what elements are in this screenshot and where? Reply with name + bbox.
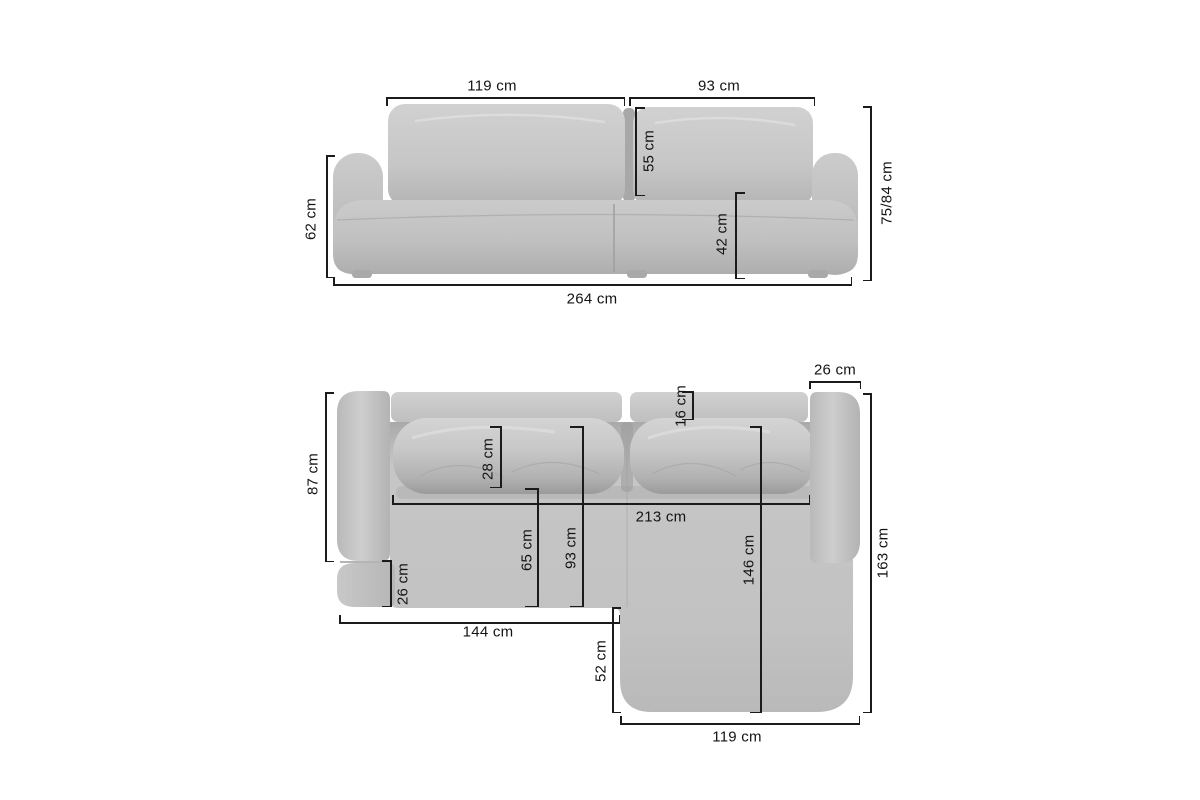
dim-label-back-cushion-depth: 28 cm <box>480 438 497 480</box>
dim-label-inner-width: 213 cm <box>636 509 687 526</box>
front-foot-right <box>808 270 828 278</box>
dim-line-seat-height <box>735 192 737 279</box>
sofa-front-illustration <box>320 88 880 300</box>
dim-label-total-depth: 163 cm <box>875 528 892 579</box>
dim-line-seat-depth-total <box>582 426 584 607</box>
dim-line-back-right-width <box>629 97 815 99</box>
dim-label-back-left-width: 119 cm <box>467 78 517 95</box>
dim-line-back-left-width <box>386 97 625 99</box>
dim-line-right-armrest-width <box>809 381 861 383</box>
dim-label-back-right-width: 93 cm <box>698 78 740 95</box>
dim-line-seat-depth <box>537 488 539 607</box>
dim-label-right-armrest-width: 26 cm <box>814 362 856 379</box>
top-back-pillow-left <box>393 418 624 494</box>
dim-label-seat-height: 42 cm <box>714 213 731 255</box>
top-front-corner-piece <box>337 563 395 607</box>
dim-line-total-width <box>333 284 852 286</box>
front-foot-middle <box>627 270 647 278</box>
dim-label-seat-depth: 65 cm <box>519 529 536 571</box>
front-foot-left <box>352 270 372 278</box>
dim-label-chaise-seat-length: 146 cm <box>741 535 758 586</box>
top-backrest-band-right <box>630 392 808 422</box>
dim-label-seat-depth-total: 93 cm <box>563 527 580 569</box>
dim-line-armrest-height <box>326 155 328 278</box>
top-backrest-band-left <box>391 392 622 422</box>
front-seat-base <box>333 200 858 274</box>
dim-label-armrest-height: 62 cm <box>303 198 320 240</box>
dim-line-chaise-seat-length <box>760 426 762 713</box>
dim-line-chaise-extension <box>612 607 614 713</box>
top-armrest-left <box>337 391 390 561</box>
dim-label-chaise-extension: 52 cm <box>593 640 610 682</box>
dim-label-total-height: 75/84 cm <box>879 161 896 225</box>
dim-line-total-depth <box>870 393 872 713</box>
sofa-top-illustration <box>300 358 900 758</box>
dim-line-back-cushion-height <box>635 107 637 196</box>
dim-label-backrest-depth: 16 cm <box>673 385 690 427</box>
dim-line-inner-width <box>392 503 810 505</box>
dim-label-armrest-length: 87 cm <box>305 453 322 495</box>
dim-label-total-width: 264 cm <box>567 291 618 308</box>
dim-line-back-cushion-depth <box>500 426 502 488</box>
dim-line-backrest-depth <box>692 391 694 420</box>
dim-line-front-corner-depth <box>390 560 392 607</box>
dim-label-chaise-width: 119 cm <box>712 729 762 746</box>
top-armrest-right <box>810 392 860 563</box>
dim-line-chaise-width <box>620 723 860 725</box>
dim-line-armrest-length <box>325 392 327 562</box>
dim-label-back-cushion-height: 55 cm <box>641 130 658 172</box>
top-back-pillow-right <box>630 418 815 494</box>
dim-line-total-height <box>870 106 872 281</box>
dim-label-front-corner-depth: 26 cm <box>395 563 412 605</box>
sofa-dimension-diagram: 119 cm 93 cm 55 cm 42 cm 62 cm 75/84 cm … <box>0 0 1200 800</box>
dim-label-left-section-length: 144 cm <box>463 624 514 641</box>
